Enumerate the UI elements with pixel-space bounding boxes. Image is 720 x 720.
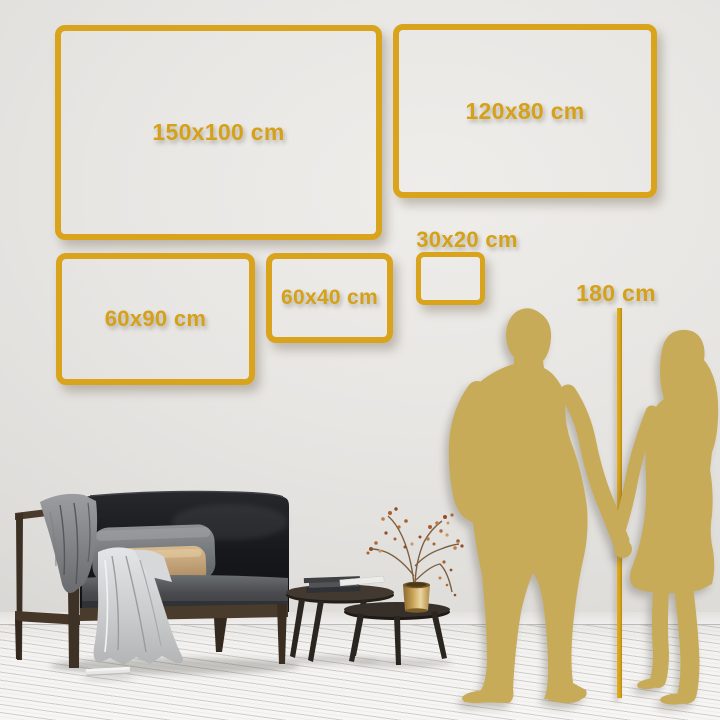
woman-silhouette: [610, 330, 718, 706]
canvas-size-guide: 150x100 cm 120x80 cm 60x90 cm 60x40 cm 3…: [0, 0, 720, 720]
man-silhouette: [459, 308, 632, 704]
couple-silhouette: [0, 0, 720, 720]
